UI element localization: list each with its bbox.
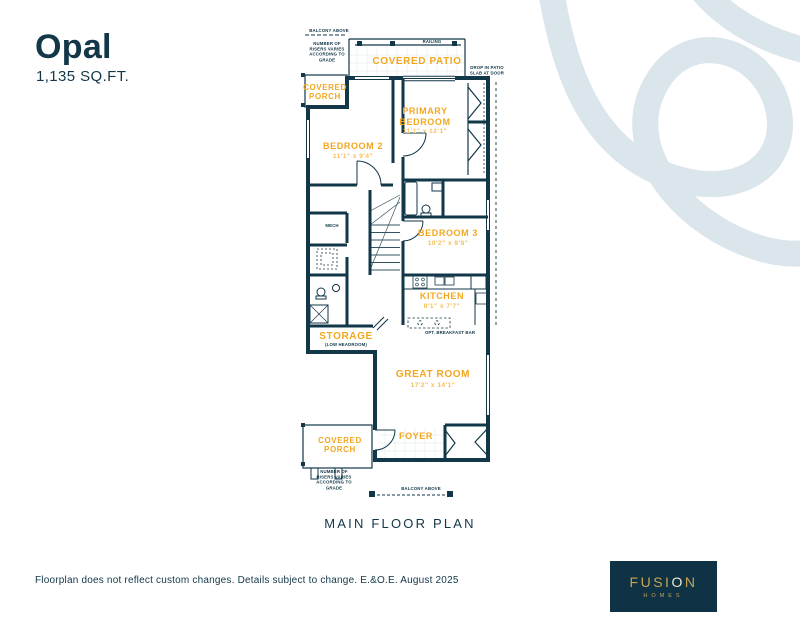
room-label-bedroom-3: BEDROOM 3: [406, 228, 490, 239]
model-sqft: 1,135 SQ.FT.: [36, 68, 129, 85]
room-label-foyer: FOYER: [388, 431, 444, 442]
room-label-covered-porch-bottom: COVERED PORCH: [314, 436, 366, 455]
note-mech: MECH: [322, 224, 342, 229]
room-dims-bedroom-3: 10'2" x 9'8": [406, 240, 490, 247]
room-covered-patio: COVERED PATIO: [352, 56, 482, 68]
model-name: Opal: [35, 28, 112, 67]
room-kitchen: KITCHEN 8'1" x 7'7": [402, 291, 482, 310]
room-dims-great-room: 17'2" x 14'1": [390, 382, 476, 389]
logo-brand-right: N: [685, 574, 698, 590]
fusion-homes-logo: FUSION HOMES: [610, 561, 717, 612]
room-bedroom-3: BEDROOM 3 10'2" x 9'8": [406, 228, 490, 247]
room-label-covered-porch-top: COVERED PORCH: [301, 83, 349, 102]
room-foyer: FOYER: [388, 431, 444, 442]
note-opt-breakfast-bar: OPT. BREAKFAST BAR: [418, 331, 483, 336]
floorplan-sheet: Opal 1,135 SQ.FT.: [0, 0, 800, 617]
room-dims-primary-bedroom: 11'1" x 12'1": [382, 128, 468, 135]
room-primary-bedroom: PRIMARY BEDROOM 11'1" x 12'1": [382, 106, 468, 135]
room-covered-porch-top: COVERED PORCH: [301, 83, 349, 102]
room-label-kitchen: KITCHEN: [402, 291, 482, 302]
disclaimer-text: Floorplan does not reflect custom change…: [35, 575, 459, 586]
note-railing: RAILING: [418, 40, 447, 45]
logo-brand-text: FUSION: [630, 574, 698, 590]
room-label-storage: STORAGE: [303, 331, 389, 343]
room-dims-kitchen: 8'1" x 7'7": [402, 303, 482, 310]
room-label-bedroom-2: BEDROOM 2: [310, 141, 396, 152]
note-balcony-above-top: BALCONY ABOVE: [308, 29, 350, 34]
room-label-primary-bedroom: PRIMARY BEDROOM: [382, 106, 468, 127]
room-dims-bedroom-2: 11'1" x 9'4": [310, 153, 396, 160]
room-note-storage: (LOW HEADROOM): [315, 343, 377, 347]
room-label-great-room: GREAT ROOM: [390, 369, 476, 381]
note-risers-bottom: NUMBER OF RISERS VARIES ACCORDING TO GRA…: [313, 470, 355, 492]
room-storage: STORAGE (LOW HEADROOM): [303, 331, 389, 349]
plan-caption: MAIN FLOOR PLAN: [290, 516, 510, 531]
logo-sub-text: HOMES: [643, 593, 683, 599]
logo-brand-o: O: [671, 574, 684, 590]
room-covered-porch-bottom: COVERED PORCH: [314, 436, 366, 455]
room-label-covered-patio: COVERED PATIO: [352, 56, 482, 68]
note-risers-top: NUMBER OF RISERS VARIES ACCORDING TO GRA…: [309, 42, 345, 64]
logo-brand-left: FUSI: [630, 574, 672, 590]
room-great-room: GREAT ROOM 17'2" x 14'1": [390, 369, 476, 389]
note-balcony-above-bottom: BALCONY ABOVE: [399, 487, 444, 492]
room-bedroom-2: BEDROOM 2 11'1" x 9'4": [310, 141, 396, 160]
